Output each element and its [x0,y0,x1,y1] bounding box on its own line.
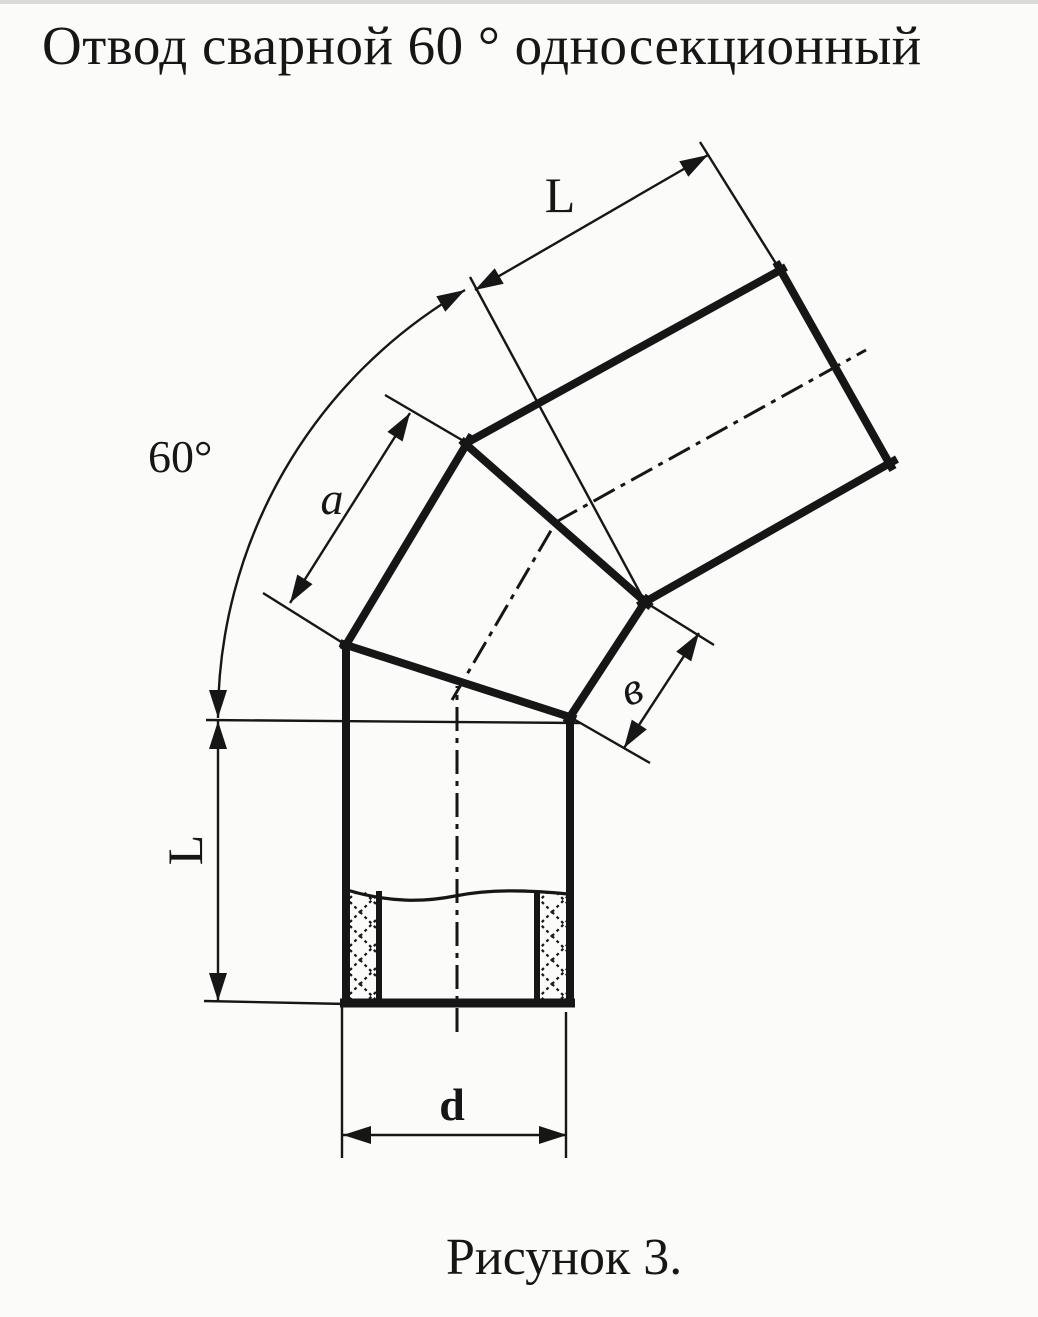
dim-angle-arc: 60° [148,290,465,718]
dim-label-a: a [321,473,344,524]
arrowhead [209,721,227,749]
figure-caption: Рисунок 3. [446,1228,682,1287]
scanned-document-page: { "title": "Отвод сварной 60 ° односекци… [0,0,1038,1317]
dim-label-length-top: L [545,167,576,223]
dim-label-length-left: L [157,835,213,866]
arrowhead [539,1126,567,1144]
arrowhead [209,973,227,1001]
arrowhead [436,290,465,312]
upper-pipe-top-edge [461,267,786,446]
arrowhead [475,268,504,290]
arrowhead [624,720,647,748]
upper-pipe-end-cap [776,262,893,470]
dim-label-angle: 60° [148,431,212,482]
extension-line [700,142,780,270]
arrowhead [290,575,313,604]
centerline-mid-segment [452,522,556,700]
centerlines [452,350,866,1032]
extension-line [263,593,346,645]
arrowhead [387,413,410,442]
extension-line [470,277,645,602]
dim-length-top: L [470,142,780,602]
extension-line [645,602,714,645]
hatch-right-wall [538,893,569,1002]
hatch-left-wall [347,891,378,1002]
dim-d: d [342,1007,567,1158]
dim-label-b: в [613,661,649,716]
dimension-line [475,155,708,290]
extension-line [206,720,580,723]
arrowhead [679,155,708,177]
arrowhead [676,633,699,661]
weld-seam-upper [461,440,651,607]
extension-line [204,1001,347,1004]
arrowhead [343,1126,371,1144]
pipe-outline [340,262,897,1007]
elbow-diagram: L 60° a в L d [0,0,1038,1317]
upper-pipe-bottom-edge [638,459,897,606]
mid-segment-left-edge [343,435,472,650]
dim-label-d: d [439,1079,465,1130]
centerline-upper-pipe [556,350,866,522]
arrowhead [209,690,227,718]
